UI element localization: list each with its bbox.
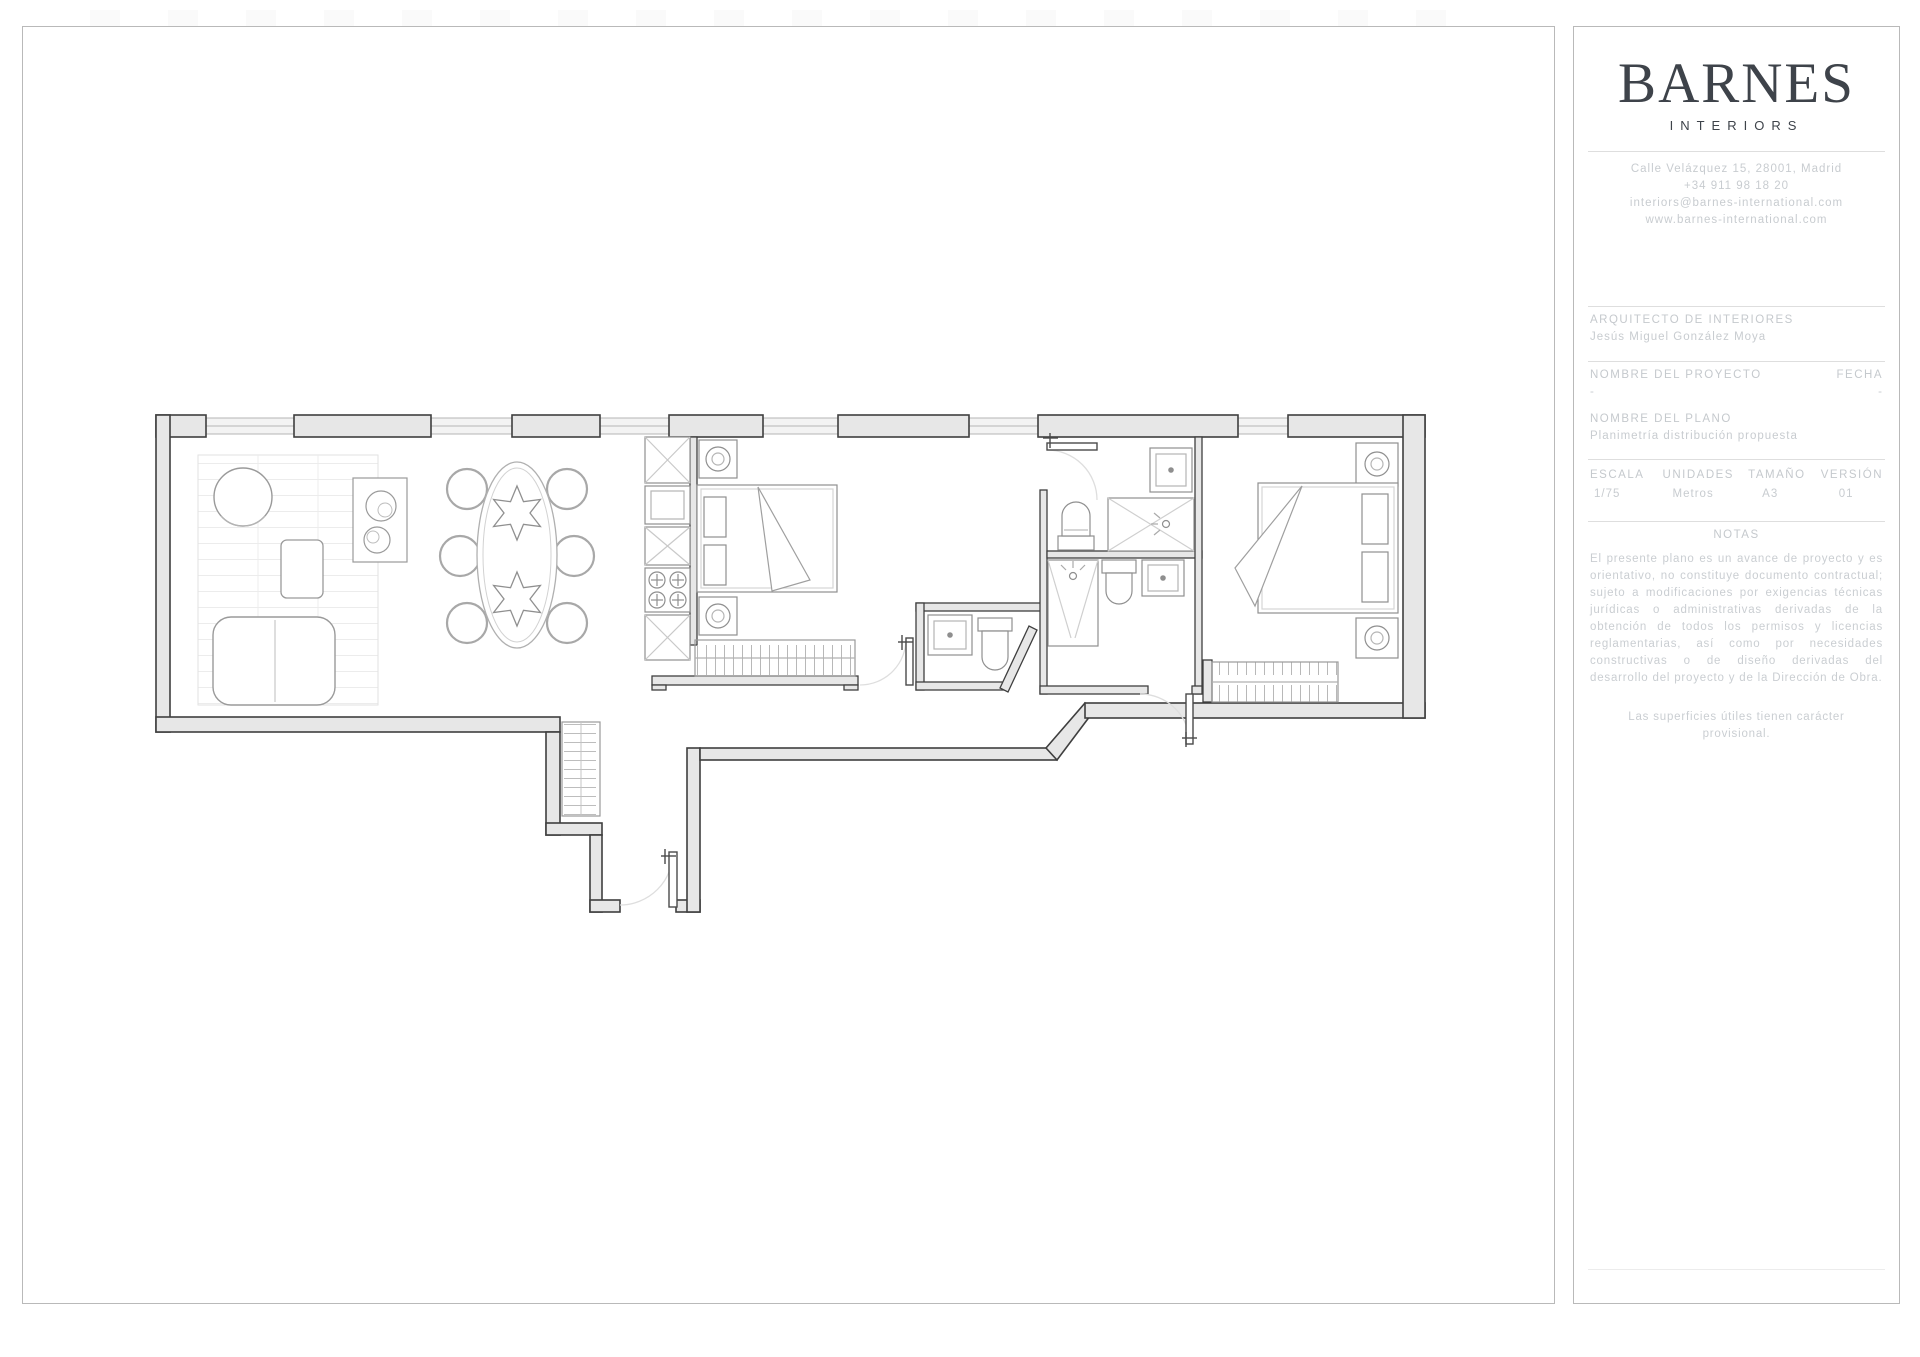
wc-bowl bbox=[982, 631, 1008, 670]
plan-field: NOMBRE DEL PLANO Planimetría distribució… bbox=[1574, 413, 1899, 442]
architect-name: Jesús Miguel González Moya bbox=[1590, 331, 1883, 343]
project-label: NOMBRE DEL PROYECTO bbox=[1590, 369, 1762, 381]
logo-name: BARNES bbox=[1590, 51, 1883, 116]
bedroom-1 bbox=[695, 440, 855, 676]
units-value: Metros bbox=[1663, 488, 1745, 500]
bedroom-2 bbox=[1212, 443, 1398, 702]
title-block: BARNES INTERIORS Calle Velázquez 15, 280… bbox=[1573, 26, 1900, 1304]
units-header: UNIDADES bbox=[1663, 469, 1745, 481]
plant bbox=[366, 491, 396, 521]
date-label: FECHA bbox=[1837, 369, 1883, 381]
wc-bowl bbox=[1106, 573, 1132, 604]
logo-subtitle: INTERIORS bbox=[1590, 118, 1883, 133]
pillow bbox=[704, 497, 726, 537]
notes-body: El presente plano es un avance de proyec… bbox=[1590, 551, 1883, 687]
scale-value: 1/75 bbox=[1590, 488, 1659, 500]
version-header: VERSIÓN bbox=[1821, 469, 1883, 481]
living-room bbox=[198, 455, 407, 705]
bathroom-1 bbox=[1058, 448, 1194, 551]
scale-header: ESCALA bbox=[1590, 469, 1659, 481]
wc-tank bbox=[1058, 536, 1094, 550]
architect-field: ARQUITECTO DE INTERIORES Jesús Miguel Go… bbox=[1574, 314, 1899, 343]
wc-tank bbox=[1102, 560, 1136, 573]
plan-value: Planimetría distribución propuesta bbox=[1590, 430, 1883, 442]
version-value: 01 bbox=[1821, 488, 1883, 500]
vestibule bbox=[562, 722, 600, 816]
kitchen bbox=[645, 437, 690, 660]
company-logo: BARNES INTERIORS bbox=[1574, 51, 1899, 133]
size-header: TAMAÑO bbox=[1748, 469, 1817, 481]
aseo bbox=[928, 615, 1012, 670]
architect-label: ARQUITECTO DE INTERIORES bbox=[1590, 314, 1883, 326]
project-field: NOMBRE DEL PROYECTO FECHA - - bbox=[1574, 369, 1899, 398]
specs-table: ESCALA UNIDADES TAMAÑO VERSIÓN 1/75 Metr… bbox=[1574, 469, 1899, 500]
pillow bbox=[1362, 494, 1388, 544]
size-value: A3 bbox=[1748, 488, 1817, 500]
bathroom-2 bbox=[1048, 560, 1184, 646]
notes-label: NOTAS bbox=[1590, 529, 1883, 541]
company-website: www.barnes-international.com bbox=[1590, 212, 1883, 229]
date-value: - bbox=[1878, 386, 1883, 398]
notes-footnote: Las superficies útiles tienen carácter p… bbox=[1590, 709, 1883, 743]
wc-bowl bbox=[1062, 502, 1090, 536]
sofa bbox=[213, 617, 335, 705]
notes-field: NOTAS El presente plano es un avance de … bbox=[1574, 529, 1899, 743]
company-phone: +34 911 98 18 20 bbox=[1590, 178, 1883, 195]
wc-tank bbox=[978, 618, 1012, 631]
project-value: - bbox=[1590, 386, 1595, 398]
pouf bbox=[281, 540, 323, 598]
company-email: interiors@barnes-international.com bbox=[1590, 195, 1883, 212]
company-address: Calle Velázquez 15, 28001, Madrid bbox=[1590, 161, 1883, 178]
pillow bbox=[704, 545, 726, 585]
company-contact: Calle Velázquez 15, 28001, Madrid +34 91… bbox=[1574, 161, 1899, 229]
dining-area bbox=[440, 462, 594, 648]
pillow bbox=[1362, 552, 1388, 602]
plan-label: NOMBRE DEL PLANO bbox=[1590, 413, 1883, 425]
